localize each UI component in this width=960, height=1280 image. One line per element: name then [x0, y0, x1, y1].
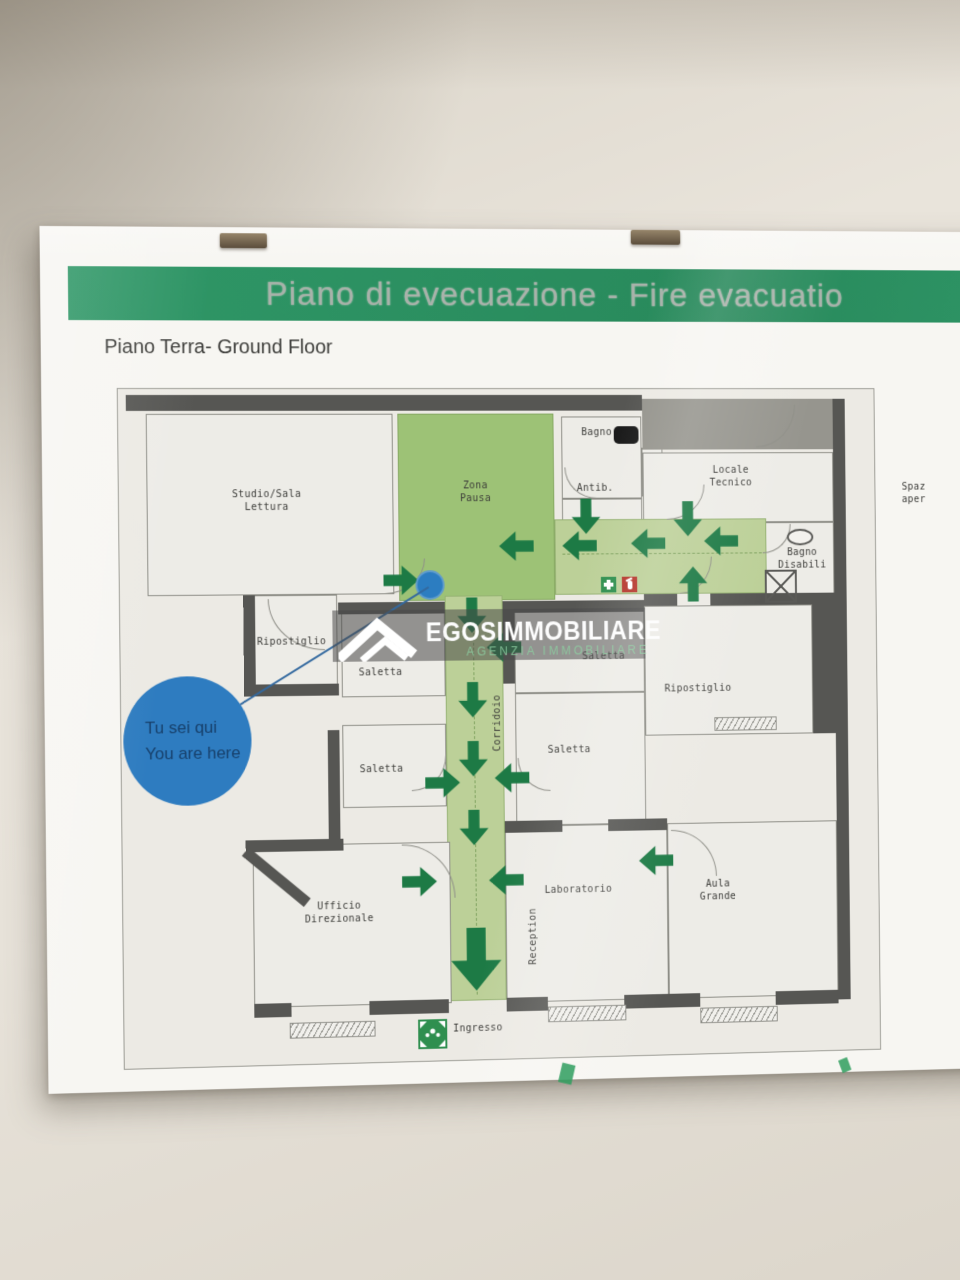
room-label-laboratorio: Laboratorio — [544, 882, 612, 896]
wall-segment — [507, 997, 548, 1012]
room-label-ufficio: Ufficio Direzionale — [305, 899, 374, 926]
toilet-icon — [787, 529, 813, 546]
room-label-saletta-nw: Saletta — [359, 666, 403, 679]
room-label-saletta-cs: Saletta — [548, 743, 591, 756]
window-symbol — [714, 716, 776, 730]
green-tape-bit — [558, 1063, 575, 1085]
room-label-reception: Reception — [526, 908, 539, 965]
assembly-point-icon — [418, 1019, 447, 1049]
plan-title: Piano di evecuazione - Fire evacuatio — [68, 274, 844, 315]
green-tape-bit — [838, 1057, 851, 1073]
plan-title-banner: Piano di evecuazione - Fire evacuatio — [68, 266, 960, 323]
wall-segment — [254, 1003, 291, 1018]
shower-icon — [765, 570, 797, 603]
evacuation-plan-poster: Piano di evecuazione - Fire evacuatio Pi… — [39, 226, 960, 1094]
agency-tagline: AGENZIA IMMOBILIARE — [466, 643, 649, 659]
room-label-saletta-w: Saletta — [360, 762, 404, 775]
window-symbol — [548, 1005, 626, 1023]
terrace-zone — [642, 399, 833, 450]
window-symbol — [290, 1021, 376, 1039]
room-label-ripostiglio-dx: Ripostiglio — [664, 681, 731, 694]
room-label-locale-tecnico: Locale Tecnico — [709, 464, 752, 489]
room-label-studio: Studio/Sala Lettura — [232, 488, 301, 514]
fire-extinguisher-icon — [622, 577, 637, 593]
floor-label: Piano Terra- Ground Floor — [104, 336, 332, 359]
wall-segment — [243, 595, 256, 690]
wall-segment — [812, 595, 836, 734]
frame-clip — [220, 233, 267, 248]
room-label-bagno-disabili: Bagno Disabili — [778, 546, 826, 572]
wall-segment — [369, 999, 449, 1015]
room-label-bagno: Bagno — [581, 426, 612, 439]
wall-segment — [328, 730, 341, 847]
agency-logo: EGOSIMMOBILIARE AGENZIA IMMOBILIARE — [332, 608, 645, 662]
wall-segment — [624, 993, 700, 1009]
window-symbol — [700, 1006, 777, 1024]
room-label-corridoio: Corridoio — [491, 695, 504, 752]
wall-segment — [246, 839, 344, 853]
room-label-antibagno: Antib. — [577, 481, 614, 494]
first-aid-icon — [601, 577, 616, 593]
room-label-ripostiglio-sx: Ripostiglio — [257, 635, 326, 649]
wall-segment — [644, 594, 677, 606]
you-are-here-dot — [415, 570, 444, 600]
wall-segment — [505, 820, 563, 833]
you-are-here-text: Tu sei qui You are here — [123, 714, 241, 768]
wall-segment — [776, 990, 839, 1005]
house-logo-icon — [338, 612, 436, 662]
room-label-ingresso: Ingresso — [453, 1021, 503, 1035]
toilet-icon — [614, 426, 639, 444]
wall-segment — [126, 395, 642, 411]
wall-photo-scene: Piano di evecuazione - Fire evacuatio Pi… — [0, 0, 960, 1280]
wall-segment — [244, 684, 339, 697]
wall-segment — [608, 818, 667, 831]
room-label-aula-grande: Aula Grande — [700, 877, 737, 903]
room-label-spazio-aperto: Spaz aper — [902, 481, 926, 506]
room-ripostiglio-dx — [644, 604, 813, 735]
frame-clip — [631, 230, 681, 245]
room-label-zona-pausa: Zona Pausa — [460, 479, 491, 505]
